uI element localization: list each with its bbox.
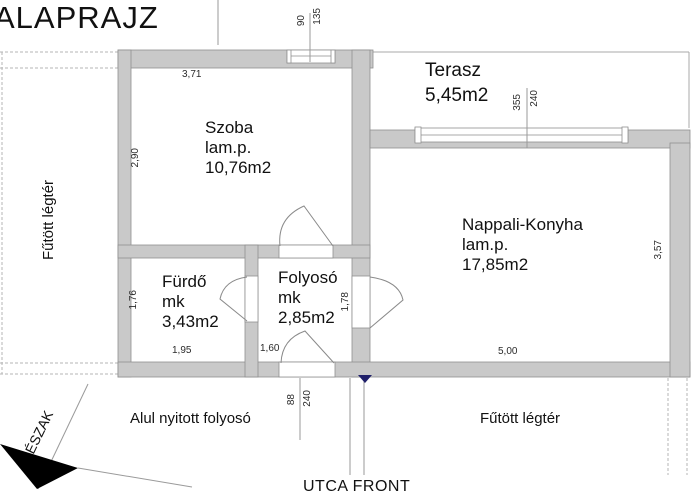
furdo-door-swing-icon xyxy=(220,277,247,321)
room-label-nappali-konyha: Nappali-Konyha lam.p. 17,85m2 xyxy=(462,215,583,275)
dim-furdo-width: 1,95 xyxy=(172,345,191,356)
room-name: Fürdő xyxy=(162,272,219,292)
dim-terasz-window-height: 240 xyxy=(529,90,540,107)
street-front-label: UTCA FRONT xyxy=(303,478,410,496)
room-name: Nappali-Konyha xyxy=(462,215,583,235)
dim-szoba-height: 2,90 xyxy=(130,148,141,167)
room-area: 3,43m2 xyxy=(162,312,219,332)
room-area: 2,85m2 xyxy=(278,308,338,328)
folyoso-door-swing-icon xyxy=(370,277,403,328)
entry-door-swing-icon xyxy=(281,331,334,363)
page-title: ALAPRAJZ xyxy=(0,0,159,36)
entrance-marker-icon xyxy=(358,375,372,383)
room-label-furdo: Fürdő mk 3,43m2 xyxy=(162,272,219,332)
floorplan-drawing xyxy=(0,0,700,500)
room-floor: mk xyxy=(278,288,338,308)
dim-folyoso-height: 1,78 xyxy=(340,292,351,311)
room-area: 10,76m2 xyxy=(205,158,271,178)
szoba-door-swing-icon xyxy=(280,206,333,246)
dim-entry-door-width: 88 xyxy=(286,394,297,405)
room-name: Szoba xyxy=(205,118,271,138)
room-label-szoba: Szoba lam.p. 10,76m2 xyxy=(205,118,271,178)
floorplan-canvas: ALAPRAJZ Szoba lam.p. 10,76m2 Terasz 5,4… xyxy=(0,0,700,500)
room-floor: mk xyxy=(162,292,219,312)
zone-label-left: Fűtött légtér xyxy=(40,160,57,260)
room-name: Terasz xyxy=(425,58,488,83)
dim-szoba-width: 3,71 xyxy=(182,69,201,80)
zone-label-bottom-left: Alul nyitott folyosó xyxy=(130,410,251,427)
dim-szoba-window-height: 135 xyxy=(312,8,323,25)
left-zone-boundary xyxy=(0,52,118,374)
szoba-window-symbol xyxy=(287,50,335,63)
room-floor: lam.p. xyxy=(462,235,583,255)
zone-label-bottom-right: Fűtött légtér xyxy=(480,410,560,427)
dim-nappali-height: 3,57 xyxy=(653,240,664,259)
dim-entry-door-height: 240 xyxy=(302,390,313,407)
room-label-folyoso: Folyosó mk 2,85m2 xyxy=(278,268,338,328)
room-area: 17,85m2 xyxy=(462,255,583,275)
dim-nappali-width: 5,00 xyxy=(498,346,517,357)
dim-furdo-height: 1,76 xyxy=(128,290,139,309)
room-floor: lam.p. xyxy=(205,138,271,158)
room-name: Folyosó xyxy=(278,268,338,288)
dim-folyoso-width: 1,60 xyxy=(260,343,279,354)
terrace-window-symbol xyxy=(415,127,628,143)
dim-szoba-window-width: 90 xyxy=(296,15,307,26)
dim-terasz-window-width: 355 xyxy=(512,94,523,111)
room-label-terasz: Terasz 5,45m2 xyxy=(425,58,488,108)
room-area: 5,45m2 xyxy=(425,83,488,108)
